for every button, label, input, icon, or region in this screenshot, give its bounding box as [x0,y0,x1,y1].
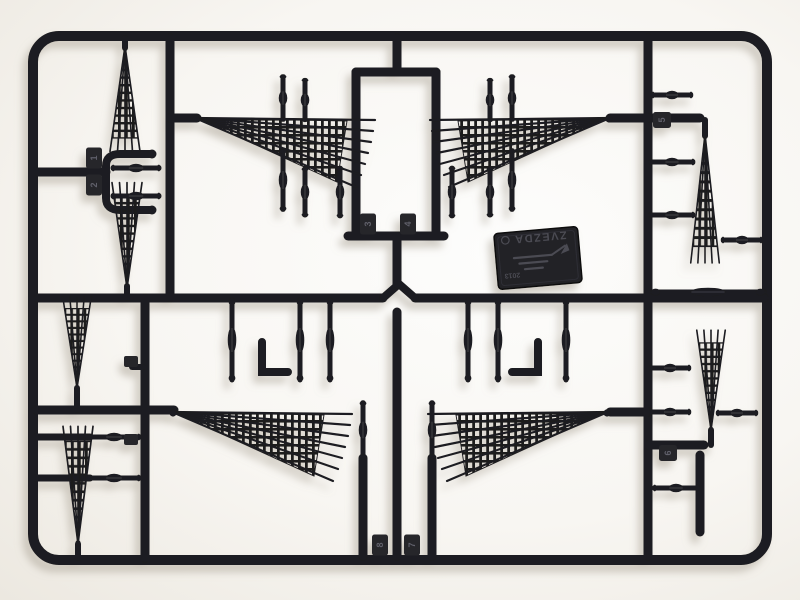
yard-part [326,299,335,382]
yard-part [301,167,310,217]
part-tab-4: 4 [400,214,416,235]
part-tab-8: 8 [372,535,388,556]
part-tab-6-label: 6 [663,450,673,455]
yard-part [649,408,690,417]
shroud-fan-large-lower-left [169,409,352,481]
part-tab-7: 7 [404,535,420,556]
part-tab-5-label: 5 [657,117,667,122]
part-tab-4-label: 4 [403,221,413,226]
shroud-fan-small-1 [110,44,140,151]
part-tab-3-label: 3 [363,221,373,226]
yard-part [359,401,368,459]
part-tab-7-label: 7 [407,542,417,547]
gate-block [124,356,138,367]
yard-part [716,409,757,418]
shroud-fan-large-upper-right [430,115,613,187]
year-text: 2013 [504,271,520,279]
yard-part [653,484,699,493]
shroud-fan-large-lower-right [428,409,611,481]
yard-part [111,164,161,173]
yard-part [428,401,437,459]
yard-part [87,474,141,483]
photo-background: 1 2 3 4 5 6 7 [0,0,800,600]
yard-parts [87,75,765,492]
elbow-part-right [512,342,538,372]
part-tab-1-label: 1 [89,155,99,160]
yard-part [464,299,473,382]
yard-part [486,167,495,217]
yard-part [494,299,503,382]
part-tab-6: 6 [659,445,677,461]
yard-part [508,75,517,121]
part-tab-3: 3 [360,214,376,235]
yard-part [486,78,495,121]
shroud-fan-small-4 [63,426,93,545]
shroud-fan-small-6 [697,330,726,431]
yard-part [649,158,695,167]
part-tab-8-label: 8 [375,542,385,547]
yard-part [651,91,692,100]
elbow-part-left [262,342,288,372]
yard-part [649,364,690,373]
shroud-fan-small-5 [691,132,720,263]
sprue: 1 2 3 4 5 6 7 [33,36,767,560]
yard-part [562,299,571,382]
yard-part [228,299,237,382]
part-tab-5: 5 [653,112,671,128]
part-tab-1: 1 [86,148,102,169]
brand-plate: ZVEZDA 2013 [494,226,583,289]
yard-part [296,299,305,382]
part-tab-2: 2 [86,175,102,196]
shroud-fan-small-3 [63,297,92,389]
yard-part [721,236,762,245]
gate-block [124,434,138,445]
part-tab-2-label: 2 [89,182,99,187]
yard-part [649,211,695,220]
sprue-photo: 1 2 3 4 5 6 7 [0,0,800,600]
yard-part [301,78,310,121]
yard-part [279,75,288,121]
